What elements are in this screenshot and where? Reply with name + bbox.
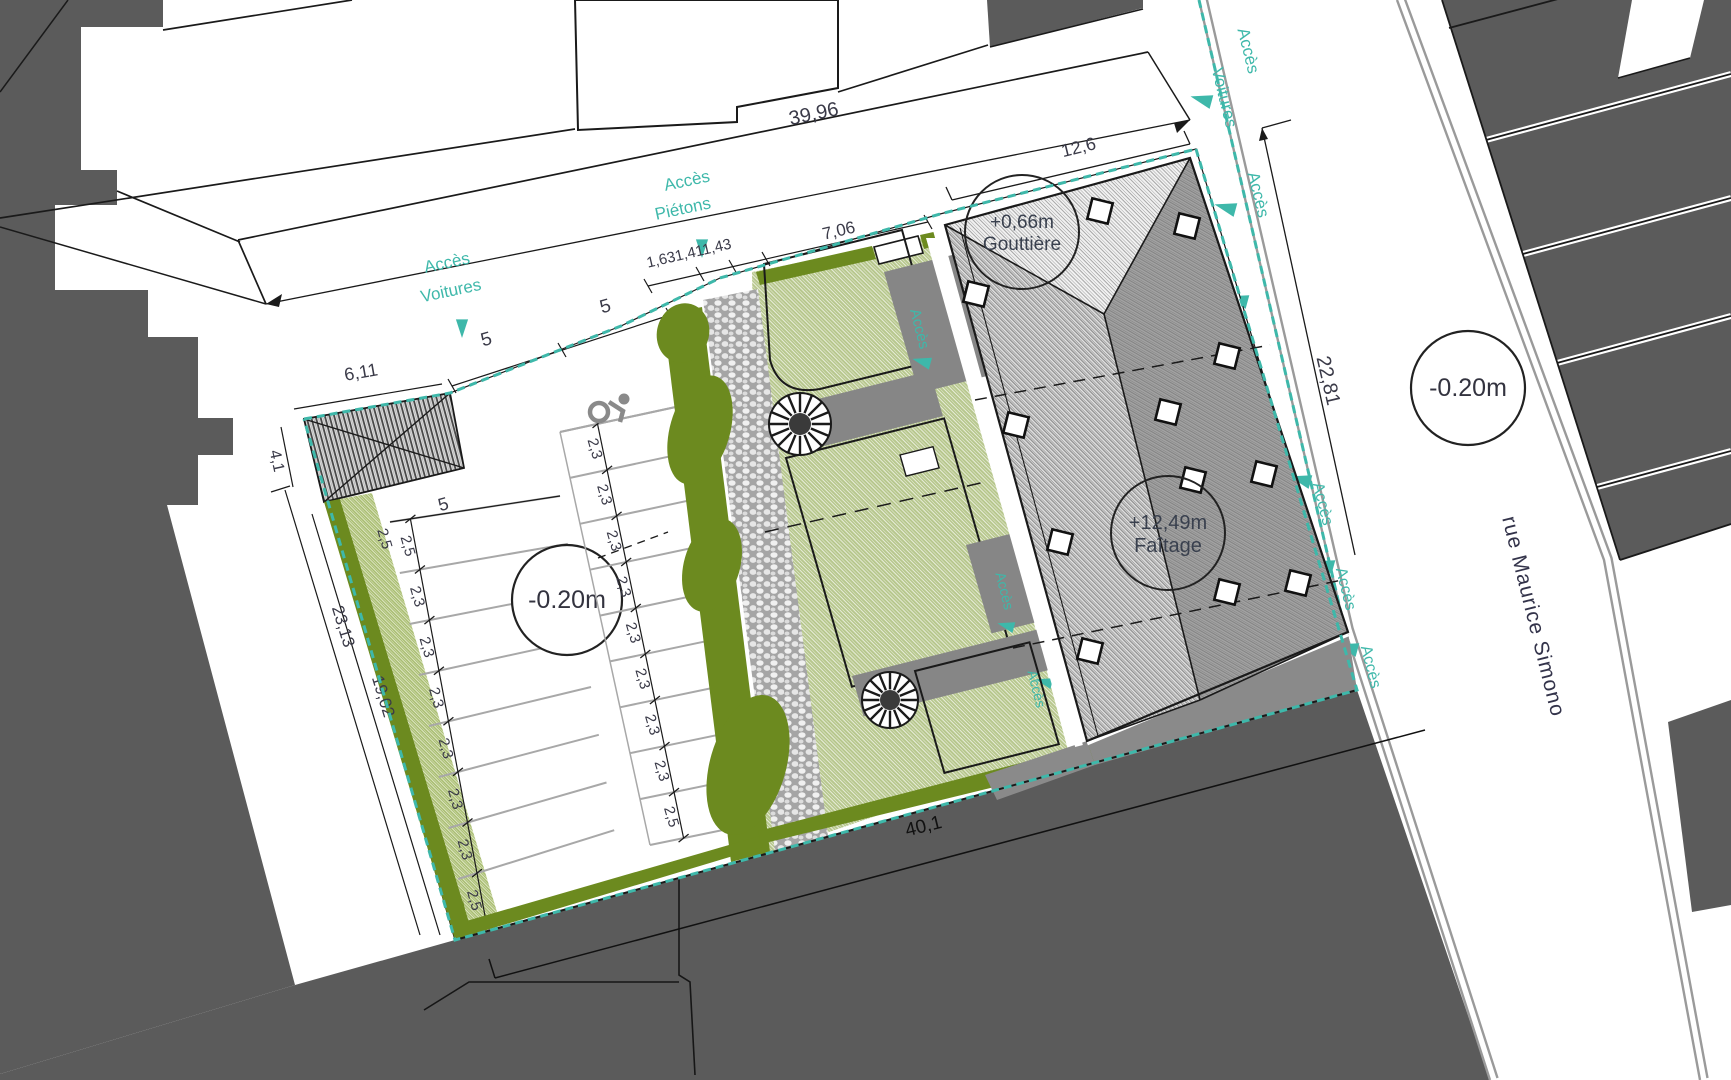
svg-text:+12,49m: +12,49m — [1129, 512, 1207, 534]
svg-text:Faîtage: Faîtage — [1134, 535, 1202, 557]
svg-text:+0,66m: +0,66m — [990, 212, 1054, 233]
svg-text:-0.20m: -0.20m — [1429, 374, 1507, 402]
svg-text:Gouttière: Gouttière — [983, 234, 1061, 255]
